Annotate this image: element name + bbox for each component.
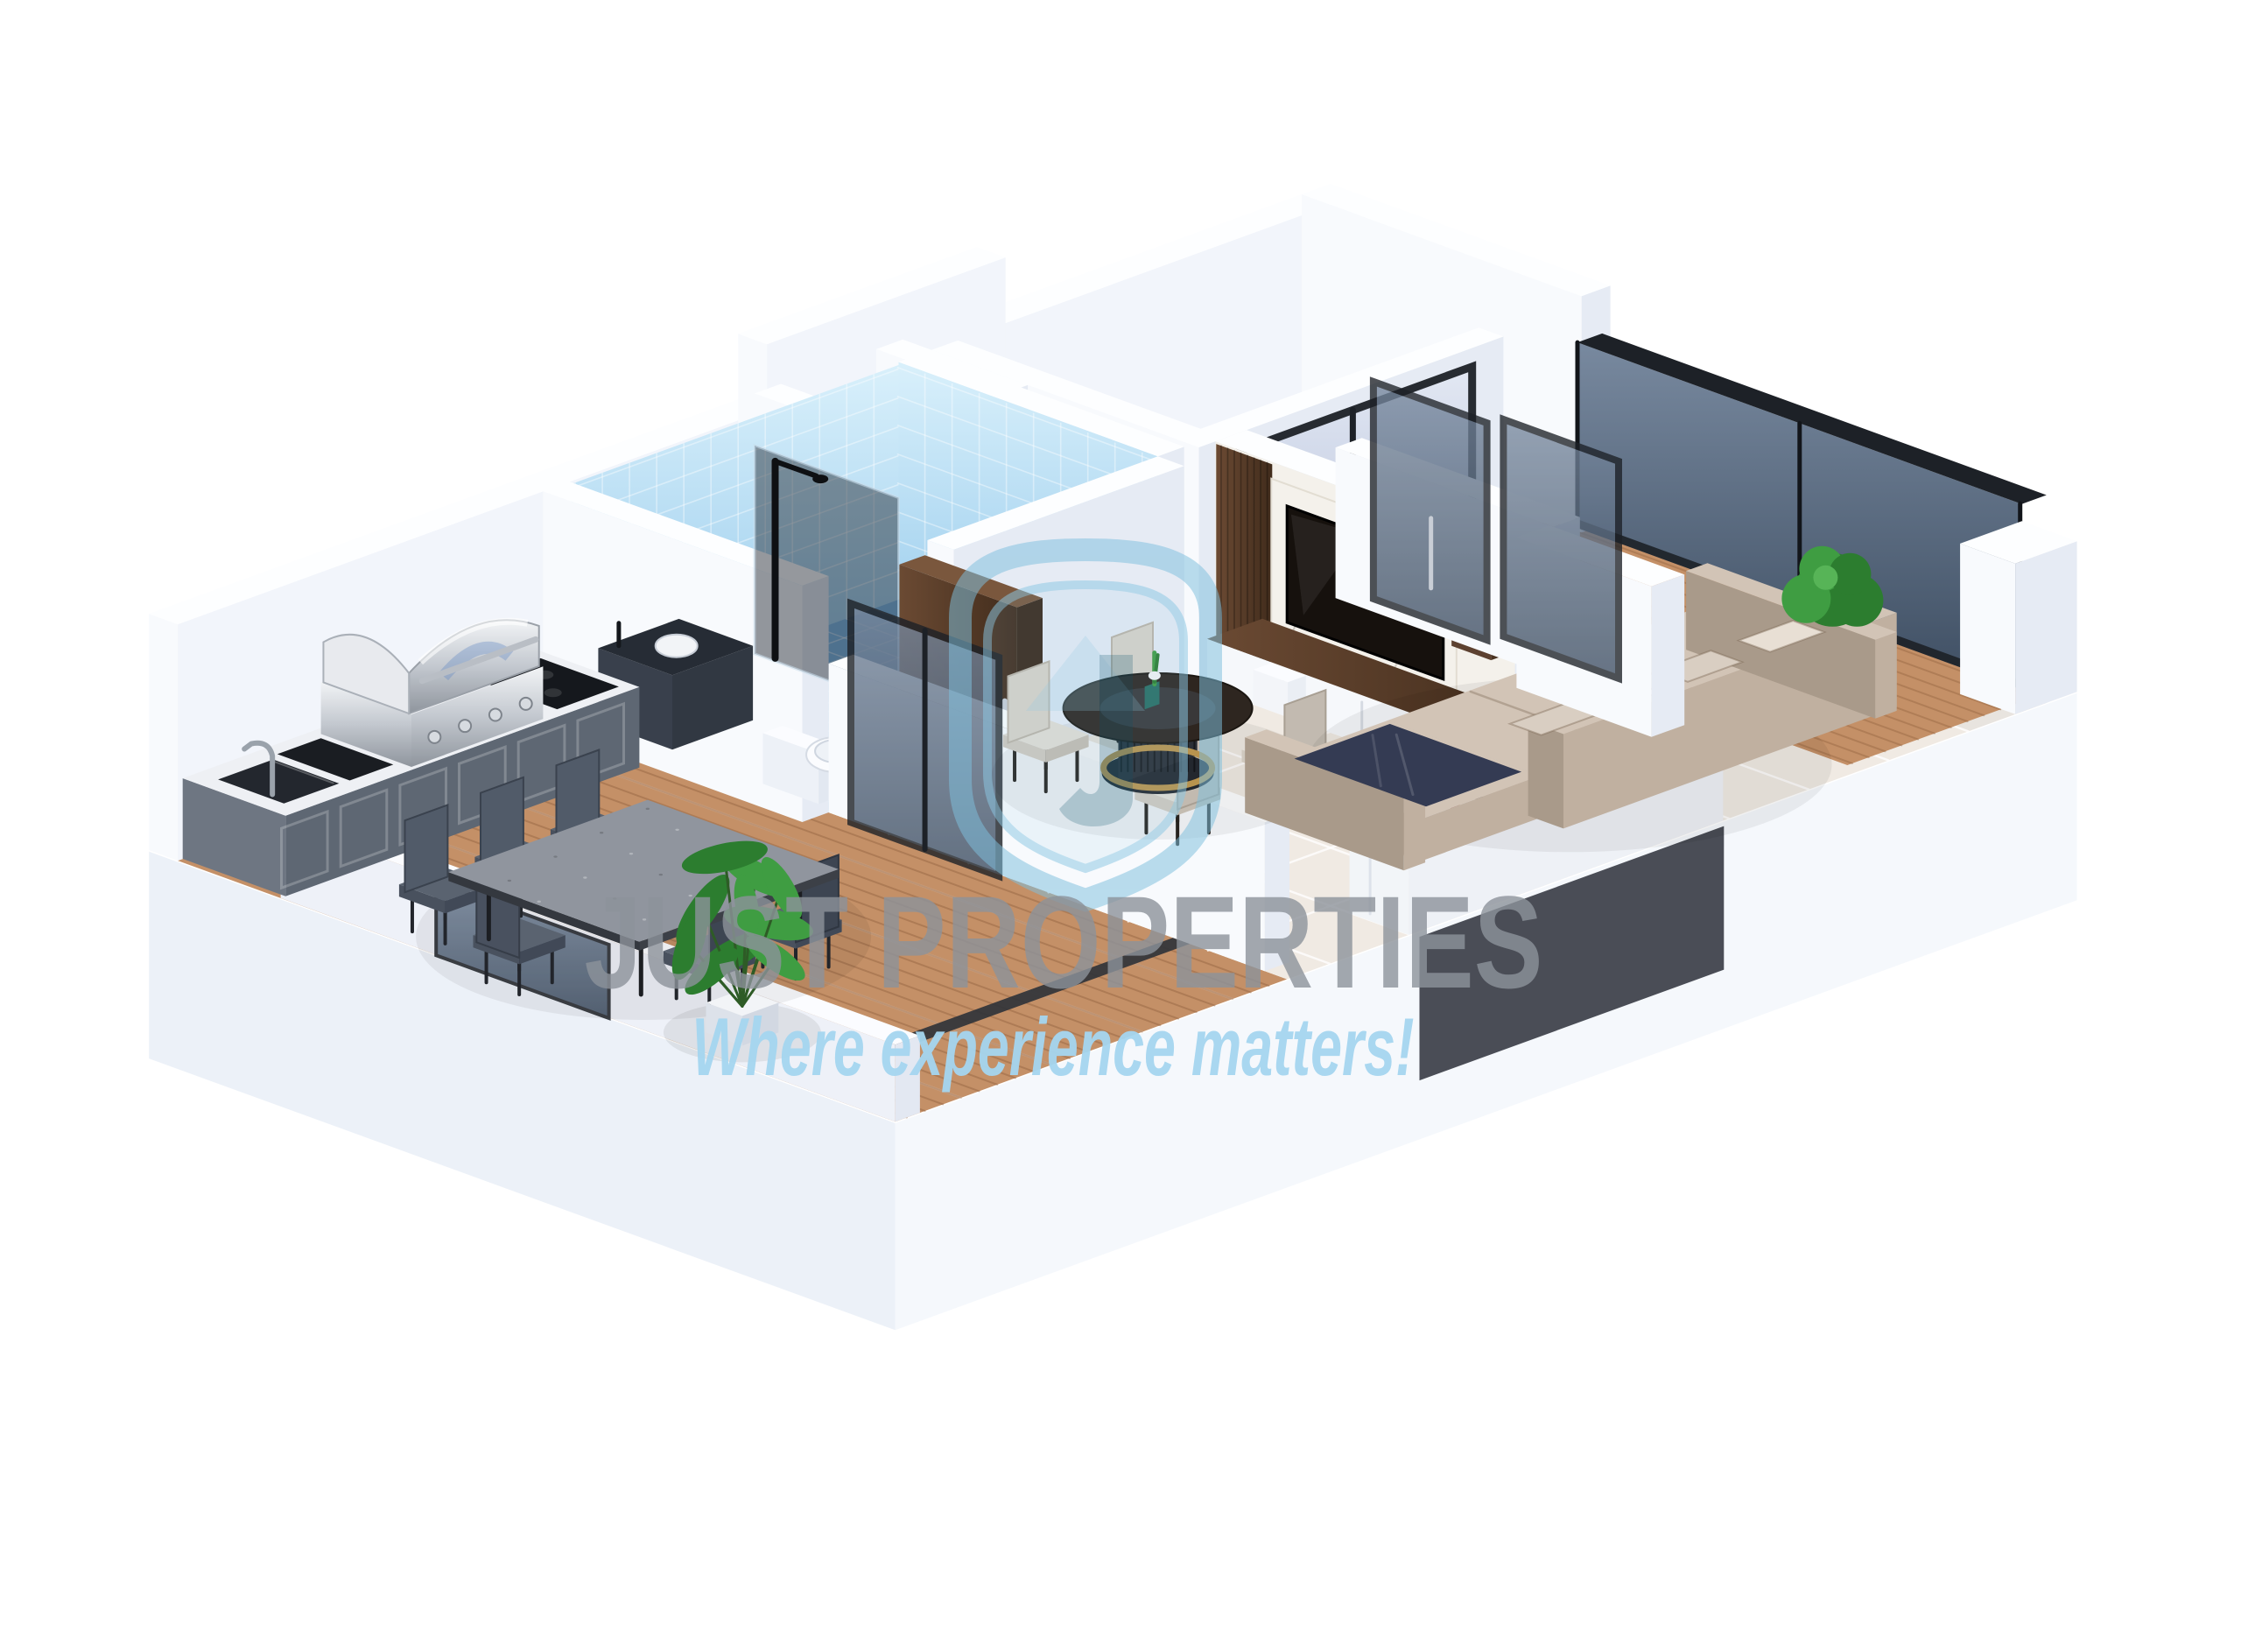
brand-watermark: JUST PROPERTIES xyxy=(585,868,1543,1016)
tagline-watermark: Where experience matters! xyxy=(692,1001,1415,1093)
isometric-apartment-scene: JUST PROPERTIES Where experience matters… xyxy=(0,0,2241,1652)
shield-jp-logo-icon xyxy=(960,550,1211,900)
floor-plan-render: JUST PROPERTIES Where experience matters… xyxy=(0,0,2241,1652)
